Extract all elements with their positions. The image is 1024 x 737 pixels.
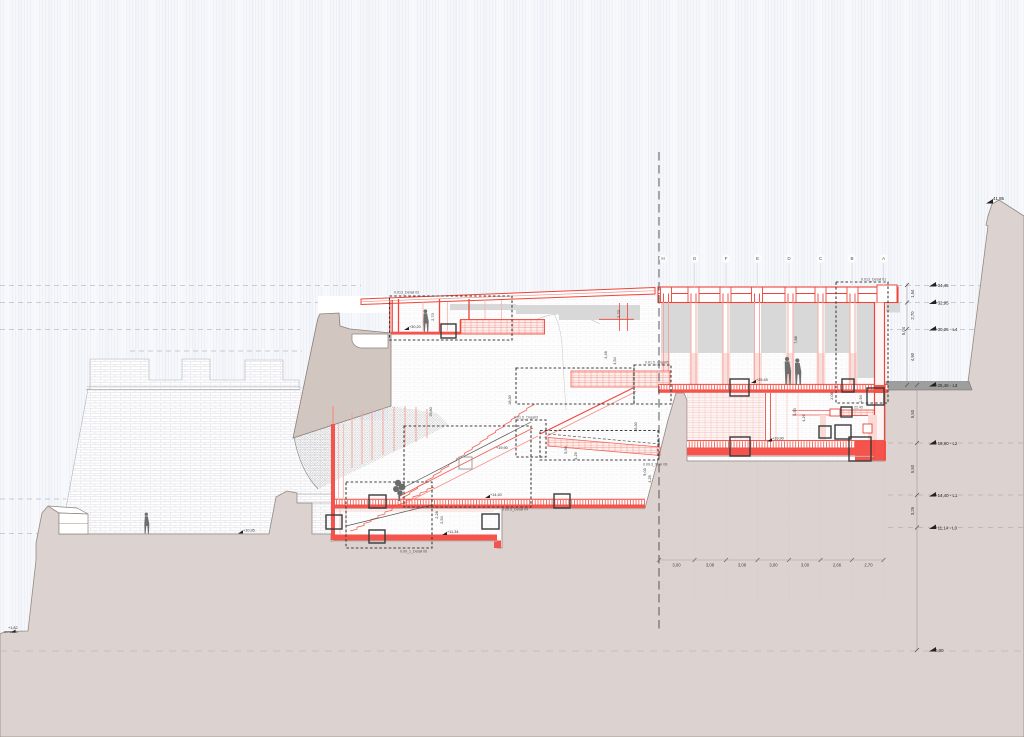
svg-text:2,06: 2,06 (830, 392, 834, 399)
svg-text:2,54: 2,54 (440, 516, 444, 523)
svg-text:+19,90 - L2: +19,90 - L2 (935, 441, 958, 446)
svg-text:F: F (725, 256, 728, 261)
svg-text:9,03: 9,03 (643, 468, 647, 475)
svg-text:4,46: 4,46 (604, 351, 608, 358)
svg-text:5,50: 5,50 (910, 464, 915, 473)
svg-text:3,08: 3,08 (706, 563, 715, 568)
svg-text:0.01.5_Orga03: 0.01.5_Orga03 (514, 416, 538, 420)
svg-text:+30,25 - L4: +30,25 - L4 (935, 327, 958, 332)
svg-text:ancorches: ancorches (4, 630, 18, 634)
svg-text:2,70: 2,70 (910, 311, 915, 320)
svg-text:4,29: 4,29 (574, 452, 578, 459)
svg-text:4,29: 4,29 (802, 414, 806, 421)
svg-text:+14,40 - L1: +14,40 - L1 (935, 493, 958, 498)
svg-text:H: H (661, 256, 664, 261)
svg-text:0.09.5_Detail 04: 0.09.5_Detail 04 (502, 508, 528, 512)
svg-text:5,50: 5,50 (564, 446, 568, 453)
svg-text:18,30: 18,30 (634, 422, 638, 432)
svg-text:+19,90: +19,90 (772, 437, 784, 441)
svg-text:3,00: 3,00 (801, 563, 810, 568)
svg-text:7,88: 7,88 (794, 336, 798, 343)
svg-text:2,28: 2,28 (435, 511, 439, 518)
svg-text:+10,35: +10,35 (243, 529, 255, 533)
svg-text:41,95: 41,95 (993, 196, 1005, 201)
svg-text:3,26: 3,26 (910, 506, 915, 515)
svg-text:0.01.5_Orga05: 0.01.5_Orga05 (645, 361, 669, 365)
svg-text:E: E (756, 256, 759, 261)
svg-text:0.013_Detail 03: 0.013_Detail 03 (394, 291, 419, 295)
svg-text:2,70: 2,70 (431, 313, 435, 320)
svg-text:+19,90: +19,90 (496, 446, 508, 450)
svg-text:+14,40: +14,40 (490, 493, 502, 497)
svg-text:+25,45 - L3: +25,45 - L3 (935, 383, 958, 388)
svg-text:3,08: 3,08 (738, 563, 747, 568)
svg-text:+32,95: +32,95 (935, 301, 949, 306)
svg-text:1,54: 1,54 (910, 289, 915, 298)
svg-text:5,04: 5,04 (901, 326, 906, 335)
svg-text:+30,20: +30,20 (409, 325, 421, 329)
svg-text:0.09.3_Stair 06: 0.09.3_Stair 06 (643, 463, 667, 467)
svg-text:5,50: 5,50 (793, 408, 797, 415)
svg-text:15,80: 15,80 (429, 407, 433, 417)
svg-text:22,45: 22,45 (854, 406, 863, 410)
svg-text:+34,45: +34,45 (935, 283, 949, 288)
svg-text:2,70: 2,70 (617, 310, 621, 317)
svg-text:0.013_Detail 01: 0.013_Detail 01 (861, 278, 886, 282)
svg-text:B: B (850, 256, 853, 261)
svg-text:2,70: 2,70 (864, 563, 873, 568)
svg-text:3,00: 3,00 (769, 563, 778, 568)
svg-text:0.09_1_Detail 06: 0.09_1_Detail 06 (400, 550, 427, 554)
svg-text:+11,14 - L0: +11,14 - L0 (935, 526, 958, 531)
svg-text:0,00: 0,00 (935, 648, 944, 653)
svg-text:2,66: 2,66 (833, 563, 842, 568)
svg-text:+11,34: +11,34 (447, 530, 458, 534)
svg-text:4,54: 4,54 (613, 357, 617, 364)
svg-text:4,90: 4,90 (910, 352, 915, 361)
svg-text:1,94: 1,94 (859, 395, 863, 402)
svg-text:G: G (693, 256, 697, 261)
svg-text:5,50: 5,50 (910, 409, 915, 418)
svg-text:18,30: 18,30 (508, 395, 512, 405)
svg-text:3,00: 3,00 (672, 563, 681, 568)
svg-text:+25,45: +25,45 (756, 378, 768, 382)
svg-text:4,25: 4,25 (648, 475, 652, 482)
